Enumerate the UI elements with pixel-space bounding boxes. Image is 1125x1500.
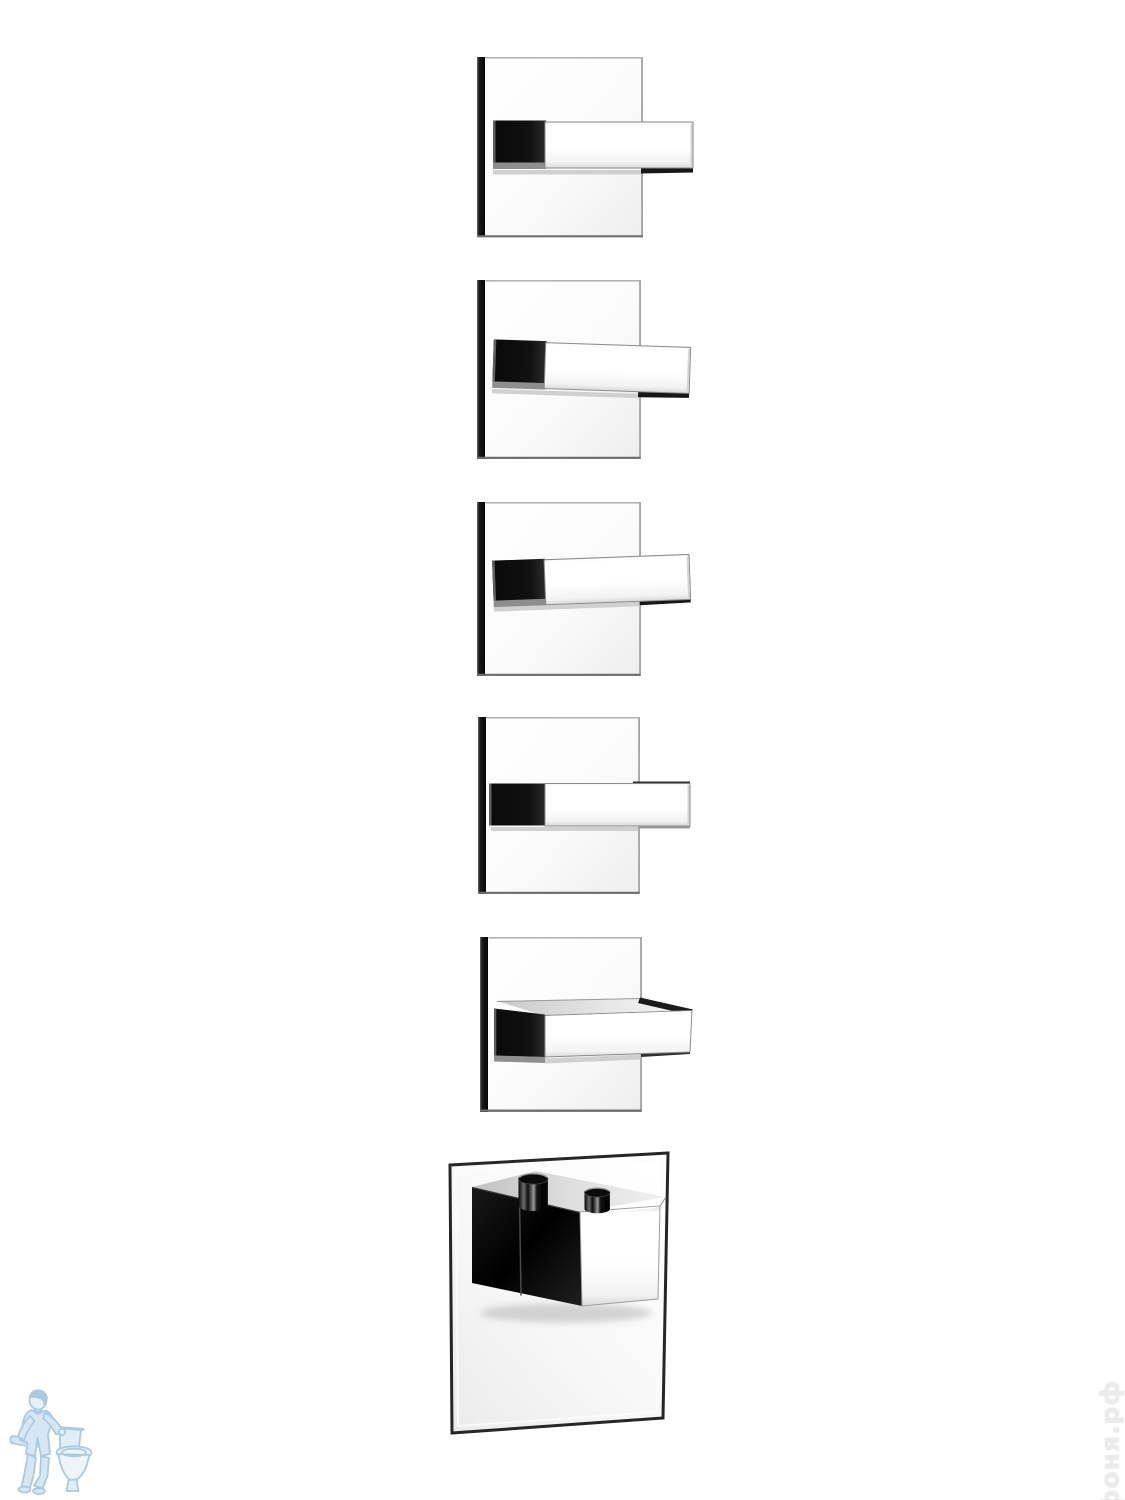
valve-5-lever-handle (494, 998, 693, 1064)
valve-unit-1 (477, 57, 693, 237)
valve-1-lever-handle (493, 121, 693, 175)
site-watermark-text: афоня.рф (1095, 1380, 1124, 1500)
valve-4-lever-handle (489, 782, 690, 832)
valve-3-lever-handle (492, 553, 691, 611)
valve-unit-5 (480, 937, 693, 1112)
product-photo-canvas: афоня.рф (0, 0, 1125, 1500)
valve-set-illustration (0, 0, 1125, 1500)
knob-pin-left (519, 1174, 548, 1211)
thermostat-cube-knob (472, 1171, 666, 1306)
plumber-with-toilet-logo (8, 1388, 110, 1498)
plumber-figure (18, 1390, 65, 1494)
valve-unit-2 (477, 280, 691, 459)
valve-unit-3 (477, 502, 691, 676)
knob-pin-right (585, 1188, 610, 1213)
thermostat-unit (450, 1153, 668, 1433)
toilet-icon (57, 1428, 92, 1492)
valve-unit-4 (478, 717, 690, 894)
